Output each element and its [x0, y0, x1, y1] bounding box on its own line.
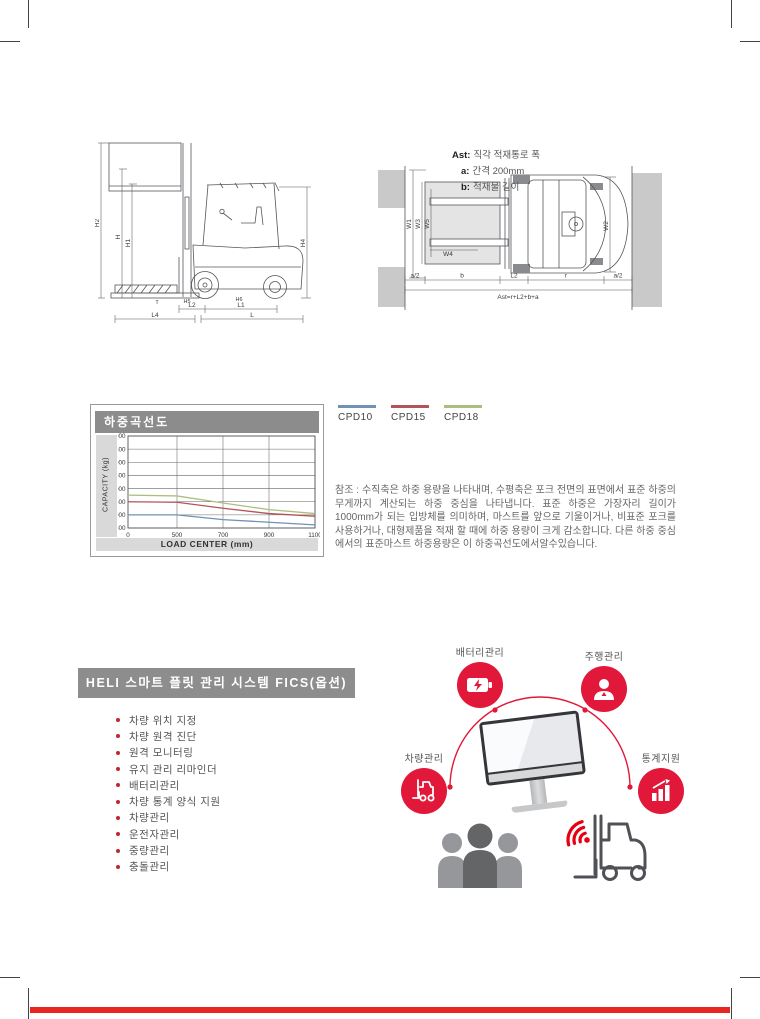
crop-mark [28, 988, 29, 1019]
dim-label-r: r [565, 273, 568, 280]
svg-text:500: 500 [118, 525, 126, 532]
svg-text:2000: 2000 [118, 486, 126, 493]
legend-label: CPD18 [444, 412, 484, 423]
svg-text:2500: 2500 [118, 473, 126, 480]
feature-item: 중량관리 [116, 842, 221, 858]
legend-item: CPD10 [338, 405, 378, 423]
bullet-dot [116, 767, 120, 771]
dim-label-w3: W3 [415, 219, 422, 229]
dim-label-w2: W2 [603, 221, 610, 231]
forklift-side-view-diagram: H2 H H1 H4 T H5 H6 L2 L1 L4 L [95, 139, 317, 337]
aisle-note-line: Ast:직각 적재통로 폭 [452, 148, 540, 164]
connected-forklift-icon [575, 816, 645, 880]
legend-swatch [391, 405, 429, 408]
legend-item: CPD15 [391, 405, 431, 423]
dim-label-b: b [460, 273, 464, 280]
monitor [476, 710, 594, 828]
footer-accent-bar [30, 1007, 730, 1013]
stats-icon [648, 778, 674, 804]
chart-x-axis-label: LOAD CENTER (mm) [96, 538, 318, 551]
bullet-dot [116, 800, 120, 804]
feature-item: 운전자관리 [116, 826, 221, 842]
node-vehicle: 차량관리 [389, 750, 459, 814]
battery-icon [465, 674, 495, 696]
dim-label-a2-right: a/2 [613, 273, 622, 280]
feature-label: 차량 위치 지정 [129, 713, 197, 728]
dim-label-h: H [115, 234, 122, 239]
feature-label: 원격 모니터링 [129, 745, 193, 760]
monitor-screen [479, 710, 586, 786]
dim-label-l4: L4 [151, 312, 159, 319]
driver-icon [591, 676, 617, 702]
svg-text:4000: 4000 [118, 433, 126, 440]
bullet-dot [116, 783, 120, 787]
dim-label-ast: Ast=r+L2+b+a [497, 294, 539, 301]
dim-label-l: L [250, 312, 254, 319]
bullet-dot [116, 816, 120, 820]
aisle-note-line: a:간격 200mm [452, 164, 540, 180]
dim-label-w4: W4 [443, 251, 453, 258]
svg-text:3000: 3000 [118, 459, 126, 466]
dim-label-a2-left: a/2 [410, 273, 419, 280]
forklift-icon [410, 777, 438, 805]
dim-label-w5: W5 [424, 219, 431, 229]
fics-feature-list: 차량 위치 지정차량 원격 진단원격 모니터링유지 관리 리마인더배터리관리차량… [116, 712, 221, 875]
load-curve-panel: 하중곡선도 CAPACITY (kg) 50010001500200025003… [90, 404, 324, 557]
crop-mark [740, 41, 760, 42]
fics-diagram: 배터리관리 주행관리 차량관리 [395, 640, 695, 910]
chart-y-axis-label: CAPACITY (kg) [96, 435, 117, 537]
node-stats: 통계지원 [626, 750, 696, 814]
dim-label-h1: H1 [125, 238, 132, 247]
bullet-dot [116, 865, 120, 869]
aisle-note-line: b:적재물 길이 [452, 180, 540, 196]
feature-label: 차량 통계 양식 지원 [129, 794, 221, 809]
feature-label: 차량관리 [129, 810, 170, 825]
svg-text:1000: 1000 [118, 512, 126, 519]
aisle-note: Ast:직각 적재통로 폭 a:간격 200mm b:적재물 길이 [452, 148, 540, 196]
feature-label: 배터리관리 [129, 778, 180, 793]
legend-item: CPD18 [444, 405, 484, 423]
feature-item: 차량 통계 양식 지원 [116, 793, 221, 809]
people-silhouettes [438, 824, 522, 889]
bullet-dot [116, 832, 120, 836]
dim-label-w1: W1 [406, 219, 413, 229]
dim-label-t: T [155, 300, 159, 306]
dim-label-h2: H2 [95, 218, 101, 227]
dim-label-h4: H4 [300, 238, 307, 247]
legend-label: CPD15 [391, 412, 431, 423]
brochure-page: H2 H H1 H4 T H5 H6 L2 L1 L4 L [0, 0, 760, 1019]
crop-mark [28, 0, 29, 28]
chart-note-paragraph: 참조 : 수직축은 하중 용량을 나타내며, 수평축은 포크 전면의 표면에서 … [335, 484, 676, 552]
feature-item: 배터리관리 [116, 777, 221, 793]
legend-swatch [444, 405, 482, 408]
feature-item: 유지 관리 리마인더 [116, 761, 221, 777]
crop-mark [731, 0, 732, 28]
bullet-dot [116, 718, 120, 722]
feature-item: 차량 원격 진단 [116, 728, 221, 744]
crop-mark [0, 977, 20, 978]
feature-item: 차량관리 [116, 810, 221, 826]
node-battery: 배터리관리 [445, 644, 515, 708]
chart-plot: 5001000150020002500300035004000050070090… [118, 433, 320, 539]
chart-title: 하중곡선도 [95, 411, 319, 433]
feature-label: 차량 원격 진단 [129, 729, 197, 744]
chart-legend: CPD10CPD15CPD18 [338, 405, 497, 423]
crop-mark [740, 977, 760, 978]
crop-mark [0, 41, 20, 42]
dim-label-l1: L1 [237, 302, 245, 309]
feature-item: 충돌관리 [116, 859, 221, 875]
bullet-dot [116, 734, 120, 738]
feature-label: 중량관리 [129, 843, 170, 858]
feature-item: 원격 모니터링 [116, 745, 221, 761]
legend-swatch [338, 405, 376, 408]
wifi-icon [564, 821, 591, 848]
fics-section-title: HELI 스마트 플릿 관리 시스템 FICS(옵션) [78, 668, 355, 698]
node-driving: 주행관리 [569, 648, 639, 712]
bullet-dot [116, 849, 120, 853]
feature-label: 유지 관리 리마인더 [129, 762, 217, 777]
legend-label: CPD10 [338, 412, 378, 423]
crop-mark [731, 988, 732, 1019]
svg-text:3500: 3500 [118, 446, 126, 453]
feature-label: 충돌관리 [129, 859, 170, 874]
svg-text:1500: 1500 [118, 499, 126, 506]
feature-item: 차량 위치 지정 [116, 712, 221, 728]
bullet-dot [116, 751, 120, 755]
feature-label: 운전자관리 [129, 827, 180, 842]
dim-label-l2: L2 [188, 302, 196, 309]
dim-label-l2: L2 [510, 273, 518, 280]
